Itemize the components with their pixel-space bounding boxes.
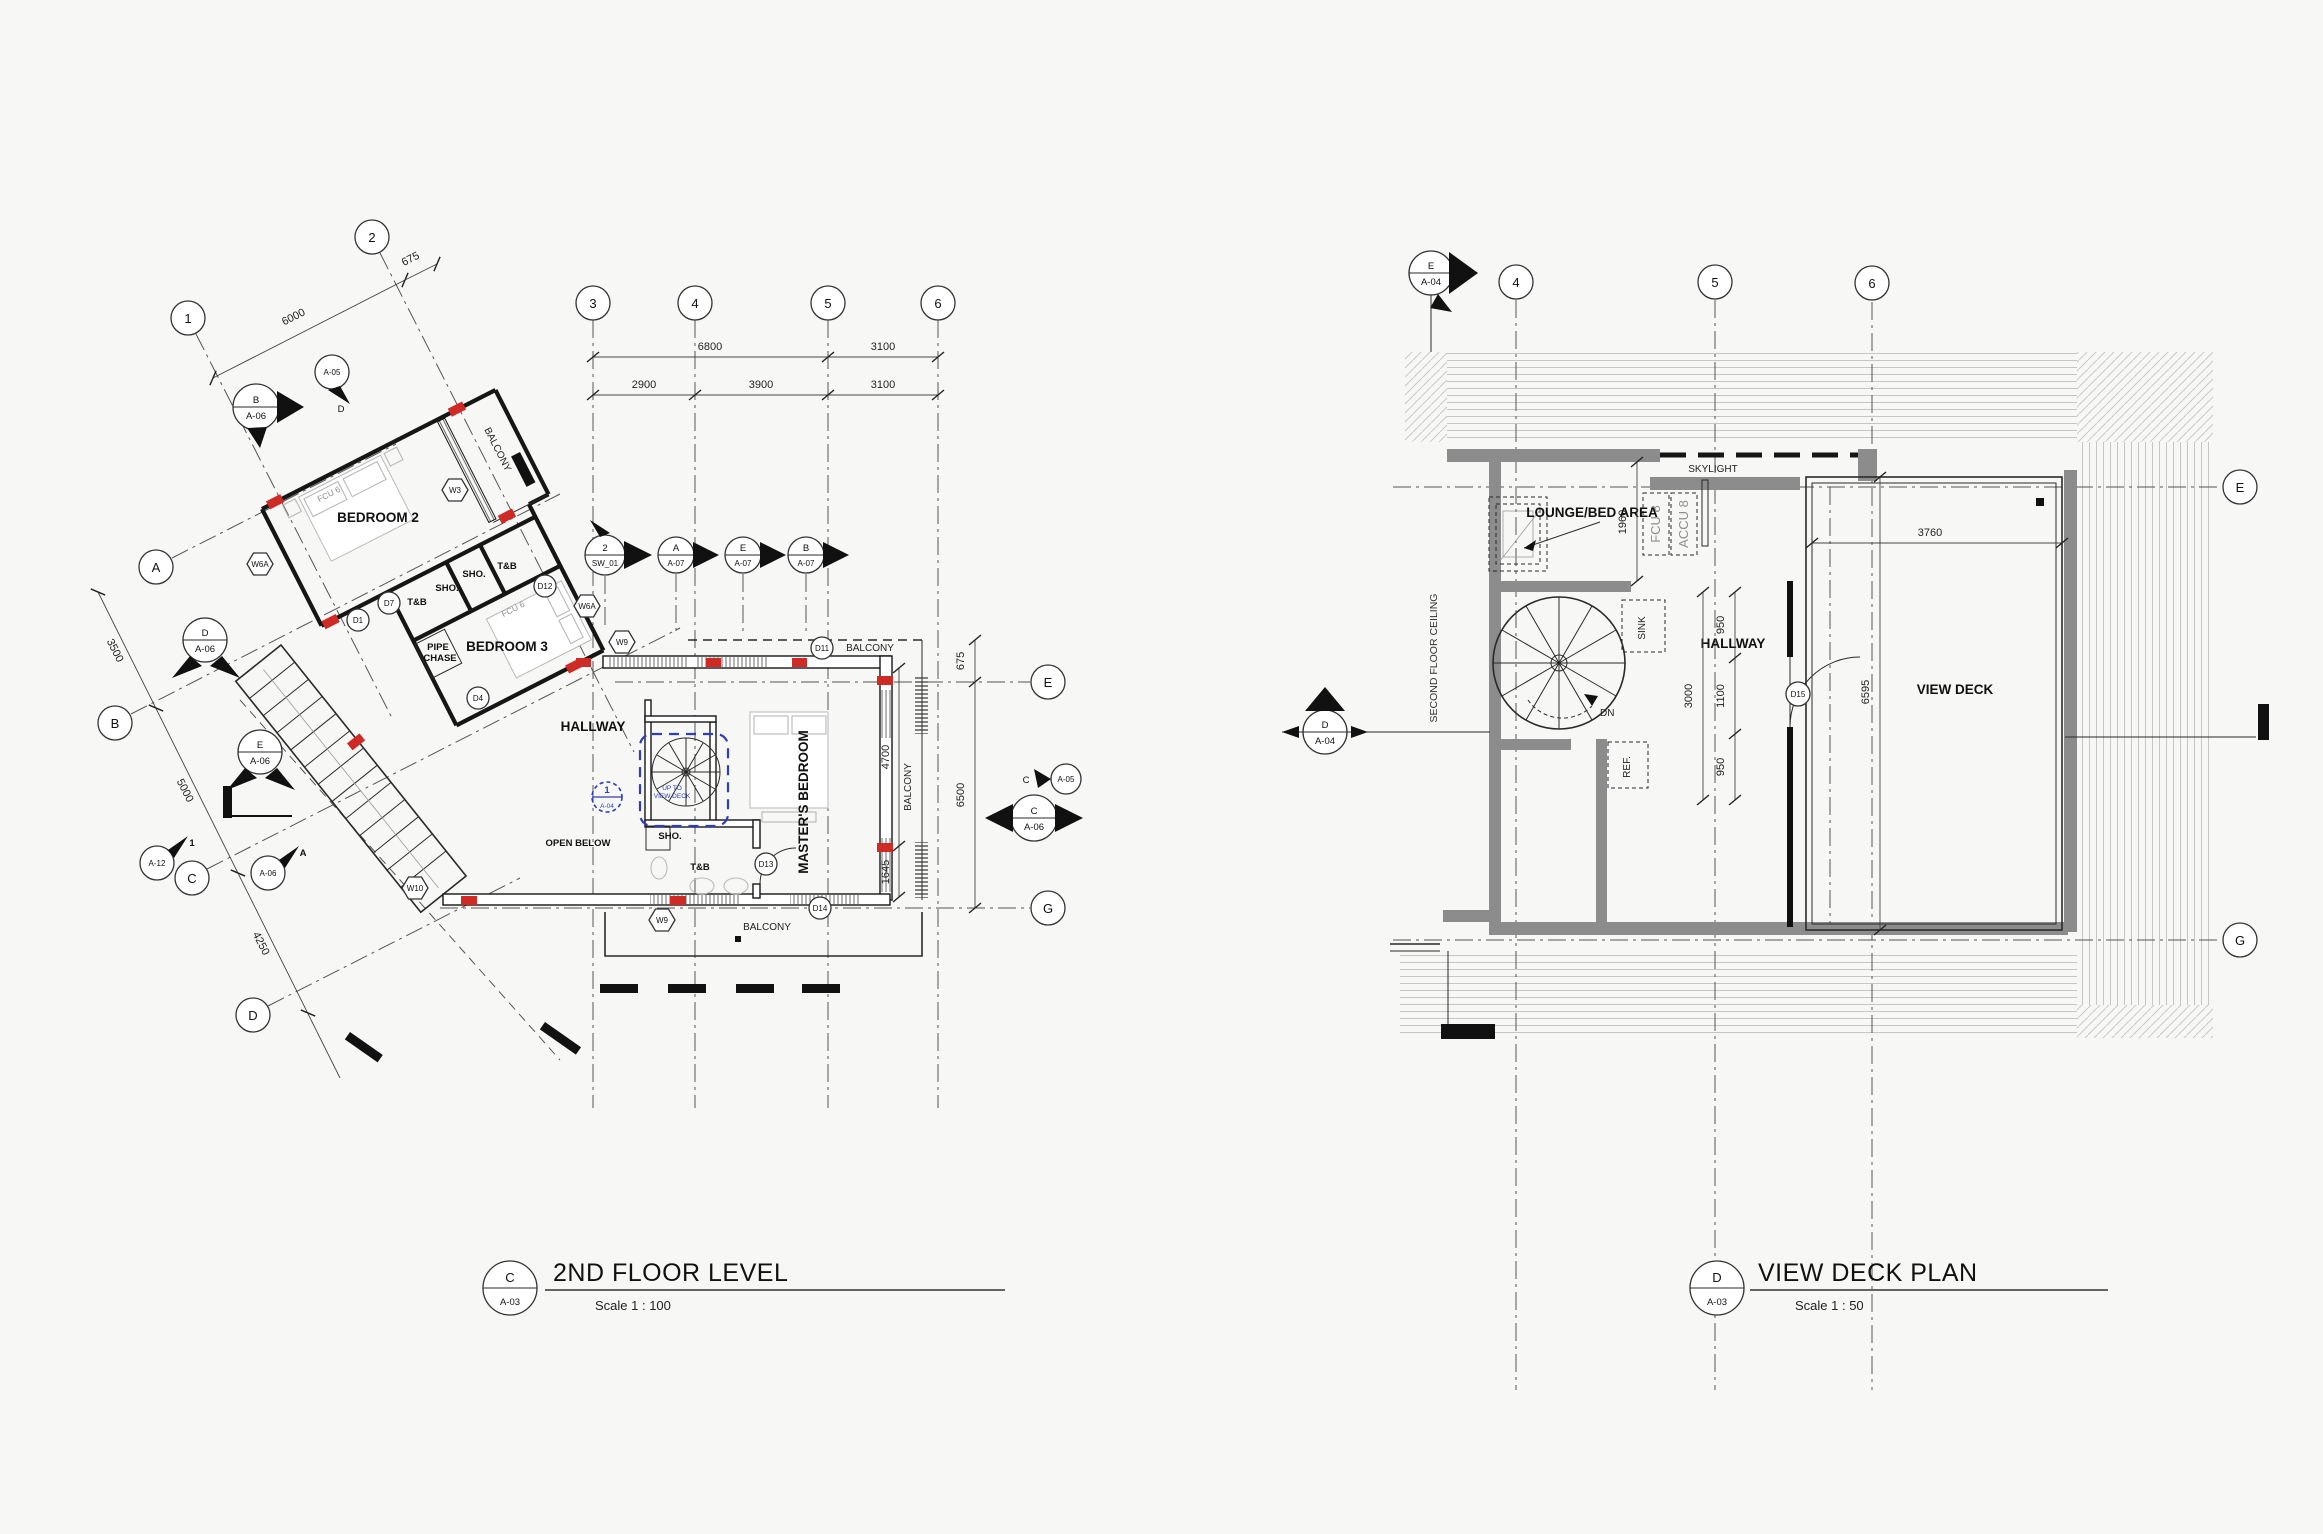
marker-a07b-letter: B xyxy=(803,543,809,554)
stair-up-note-1: UP TO xyxy=(662,785,682,792)
balcony-label-top: BALCONY xyxy=(846,643,894,654)
dim-950-a: 950 xyxy=(1715,616,1727,634)
marker-e-a04-letter: E xyxy=(1428,261,1434,272)
room-tb1: T&B xyxy=(407,597,427,608)
marker-a07b-sheet: A-07 xyxy=(798,559,815,568)
second-floor-ceiling-note: SECOND FLOOR CEILING xyxy=(1428,594,1440,723)
marker-sw01-sheet: SW_01 xyxy=(592,559,619,568)
right-title-text: VIEW DECK PLAN xyxy=(1758,1259,1978,1287)
right-title-block: D A-03 VIEW DECK PLAN Scale 1 : 50 xyxy=(1690,1259,2108,1315)
grid-bubble-B: B xyxy=(111,716,120,731)
room-bedroom2: BEDROOM 2 xyxy=(337,510,419,525)
callout-number: 1 xyxy=(604,785,610,796)
right-plan-view-deck: FCU 8 ACCU 8 SKYLIGHT DN SINK REF. LOUNG… xyxy=(1282,251,2269,1390)
marker-a07a-letter: A xyxy=(673,543,680,554)
room-hallway-right: HALLWAY xyxy=(1701,636,1766,651)
tag-d14: D14 xyxy=(813,904,828,913)
marker-d-a06-sheet: A-06 xyxy=(195,644,215,655)
marker-d-a06-letter: D xyxy=(202,628,209,639)
stair-up-note-2: VIEW DECK xyxy=(654,793,691,800)
tag-w6a-2: W6A xyxy=(578,602,596,611)
stair-dn-label: DN xyxy=(1600,708,1614,719)
dim-3900: 3900 xyxy=(749,379,773,391)
dim-3100-b: 3100 xyxy=(871,379,895,391)
marker-d-a04-letter: D xyxy=(1322,720,1329,731)
dim-3000: 3000 xyxy=(1683,684,1695,708)
tag-d15: D15 xyxy=(1791,690,1806,699)
dim-675-top: 675 xyxy=(400,250,422,269)
sink-label: SINK xyxy=(1637,616,1648,640)
marker-a05c-sheet: A-05 xyxy=(1058,775,1075,784)
dim-1645: 1645 xyxy=(880,860,892,884)
grid-bubble-5: 5 xyxy=(824,296,831,311)
marker-a12-sheet: A-12 xyxy=(149,859,166,868)
marker-a05c-letter: C xyxy=(1023,775,1030,786)
marker-e-a06-letter: E xyxy=(257,740,263,751)
dim-3100-a: 3100 xyxy=(871,341,895,353)
marker-a06a-sheet: A-06 xyxy=(260,869,277,878)
right-title-sheet: A-03 xyxy=(1707,1297,1727,1308)
dim-6000: 6000 xyxy=(280,306,307,328)
left-plan-2nd-floor: 1 2 3 4 5 6 A B C D E G 6800 3100 2900 3… xyxy=(91,220,1083,1108)
dim-3760: 3760 xyxy=(1918,527,1942,539)
grid-bubble-Gr: G xyxy=(2235,933,2245,948)
master-dimensions: 675 6500 4700 1645 BALCONY xyxy=(880,635,981,913)
grid-bubble-6: 6 xyxy=(934,296,941,311)
dim-4700: 4700 xyxy=(880,745,892,769)
dim-1960: 1960 xyxy=(1617,510,1629,534)
room-sho1: SHO. xyxy=(435,583,458,594)
left-title-ref: C xyxy=(505,1270,514,1285)
marker-c-a06-sheet: A-06 xyxy=(1024,822,1044,833)
room-tb2: T&B xyxy=(497,561,517,572)
marker-a06a-letter: A xyxy=(300,848,307,859)
grid-bubble-C: C xyxy=(187,871,196,886)
room-bedroom3: BEDROOM 3 xyxy=(466,639,548,654)
accu8-label: ACCU 8 xyxy=(1676,500,1691,548)
dim-6595: 6595 xyxy=(1860,680,1872,704)
room-open-below: OPEN BELOW xyxy=(546,838,611,849)
marker-c-a06-letter: C xyxy=(1031,806,1038,817)
grid-bubble-D: D xyxy=(248,1008,257,1023)
wing-walls: FCU 6 FCU 6 BALCONY xyxy=(260,386,626,764)
dim-950-b: 950 xyxy=(1715,758,1727,776)
balcony-label-bottom: BALCONY xyxy=(743,922,791,933)
left-title-sheet: A-03 xyxy=(500,1297,520,1308)
grid-bubble-3: 3 xyxy=(589,296,596,311)
marker-a12-letter: 1 xyxy=(189,838,195,849)
marker-a07e-sheet: A-07 xyxy=(735,559,752,568)
dim-675-right: 675 xyxy=(955,652,967,670)
dim-6800: 6800 xyxy=(698,341,722,353)
grid-bubble-2: 2 xyxy=(368,230,375,245)
title-blocks: C A-03 2ND FLOOR LEVEL Scale 1 : 100 D A… xyxy=(483,1259,2108,1315)
ref-label: REF. xyxy=(1622,756,1633,778)
right-title-ref: D xyxy=(1712,1270,1721,1285)
marker-a05d-sheet: A-05 xyxy=(324,368,341,377)
skylight-label: SKYLIGHT xyxy=(1688,464,1737,475)
room-viewdeck: VIEW DECK xyxy=(1917,682,1994,697)
marker-a05d-letter: D xyxy=(338,404,345,415)
left-title-text: 2ND FLOOR LEVEL xyxy=(553,1259,788,1287)
marker-e-a04-sheet: A-04 xyxy=(1421,277,1441,288)
room-tb3: T&B xyxy=(690,862,710,873)
room-sho2: SHO. xyxy=(462,569,485,580)
balcony-label-wing: BALCONY xyxy=(481,426,513,474)
grid-bubble-5r: 5 xyxy=(1711,275,1718,290)
callout-stair-detail: 1 A-04 UP TO VIEW DECK xyxy=(592,782,691,812)
plan-canvas: 1 2 3 4 5 6 A B C D E G 6800 3100 2900 3… xyxy=(0,0,2323,1534)
dim-1100: 1100 xyxy=(1715,684,1727,708)
dim-2900: 2900 xyxy=(632,379,656,391)
tag-w6a-1: W6A xyxy=(251,560,269,569)
grid-bubble-E: E xyxy=(1044,675,1053,690)
room-hallway: HALLWAY xyxy=(561,719,626,734)
grid-bubble-Er: E xyxy=(2236,480,2245,495)
tag-d1: D1 xyxy=(353,616,364,625)
grid-bubble-1: 1 xyxy=(184,311,191,326)
tag-w3: W3 xyxy=(449,486,462,495)
tag-w10: W10 xyxy=(407,884,424,893)
grid-bubble-A: A xyxy=(152,560,161,575)
room-lounge: LOUNGE/BED AREA xyxy=(1526,505,1658,520)
balcony-label-right: BALCONY xyxy=(903,763,914,811)
tag-d13: D13 xyxy=(759,860,774,869)
tag-d11: D11 xyxy=(815,644,830,653)
spiral-stair-right: DN SINK REF. xyxy=(1493,597,1665,788)
callout-sheet: A-04 xyxy=(600,803,614,810)
drawing-sheet: 1 2 3 4 5 6 A B C D E G 6800 3100 2900 3… xyxy=(0,0,2323,1534)
tag-d4: D4 xyxy=(473,694,484,703)
grid-bubble-G: G xyxy=(1043,901,1053,916)
marker-d-a04-sheet: A-04 xyxy=(1315,736,1335,747)
room-sho3: SHO. xyxy=(658,831,681,842)
right-title-scale: Scale 1 : 50 xyxy=(1795,1298,1864,1313)
grid-bubble-6r: 6 xyxy=(1868,276,1875,291)
grid-bubble-4: 4 xyxy=(691,296,698,311)
marker-a07a-sheet: A-07 xyxy=(668,559,685,568)
grid-bubble-4r: 4 xyxy=(1512,275,1519,290)
marker-e-a06-sheet: A-06 xyxy=(250,756,270,767)
marker-b-a06-sheet: A-06 xyxy=(246,411,266,422)
marker-a07e-letter: E xyxy=(740,543,746,554)
room-master-bedroom: MASTER'S BEDROOM xyxy=(796,730,811,873)
left-title-block: C A-03 2ND FLOOR LEVEL Scale 1 : 100 xyxy=(483,1259,1005,1315)
room-pipe-1: PIPE xyxy=(427,642,449,653)
tag-w9-1: W9 xyxy=(616,638,629,647)
tag-d7: D7 xyxy=(384,599,395,608)
marker-b-a06-letter: B xyxy=(253,395,259,406)
dim-6500: 6500 xyxy=(955,783,967,807)
room-pipe-2: CHASE xyxy=(423,653,456,664)
tag-d12: D12 xyxy=(538,582,553,591)
tag-w9-2: W9 xyxy=(656,916,669,925)
marker-sw01-letter: 2 xyxy=(602,543,607,554)
left-title-scale: Scale 1 : 100 xyxy=(595,1298,671,1313)
